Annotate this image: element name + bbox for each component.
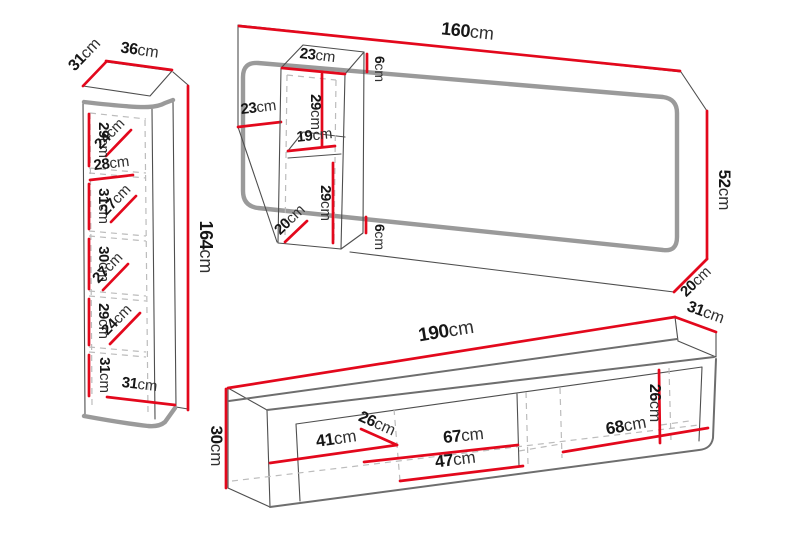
dim-label-cabinet-upper-section: 29cm xyxy=(307,94,324,130)
dim-label-stand-height: 30cm xyxy=(207,426,226,467)
dim-label-stand-right-height: 26cm xyxy=(646,384,663,422)
furniture-dimensions-diagram: 31cm 36cm 164cm 29cm 24cm 28cm 31cm 27cm… xyxy=(0,0,800,533)
dim-label-gap-top: 6cm xyxy=(372,56,388,82)
tv-stand-left-face xyxy=(228,388,270,507)
dim-line-tall-shelf-width xyxy=(90,175,133,180)
dim-label-tall-bottom-width: 31cm xyxy=(121,374,159,395)
dim-label-stand-front-width: 47cm xyxy=(434,448,477,472)
wall-panel-with-cabinet: 160cm 23cm 6cm 23cm 29cm 19cm 29cm 20cm … xyxy=(238,18,734,300)
dim-label-panel-bottom-depth: 20cm xyxy=(677,263,715,300)
dim-label-tall-sec5-height: 31cm xyxy=(96,357,113,393)
dim-label-tall-sec2-diag: 27cm xyxy=(97,181,134,219)
dim-label-stand-mid-compartment: 67cm xyxy=(442,424,485,447)
dim-label-stand-left-compartment: 41cm xyxy=(315,426,358,450)
dim-label-gap-bottom: 6cm xyxy=(372,224,388,250)
tv-stand-interior-edges xyxy=(296,367,702,501)
dim-label-tall-height: 164cm xyxy=(196,221,216,274)
dim-label-panel-height: 52cm xyxy=(715,170,734,211)
tv-stand: 190cm 31cm 30cm 41cm 26cm 67cm 47cm 26cm… xyxy=(207,298,726,507)
dim-label-cabinet-top-width: 23cm xyxy=(299,45,337,66)
tall-cabinet: 31cm 36cm 164cm 29cm 24cm 28cm 31cm 27cm… xyxy=(65,35,216,426)
dim-line-tall-bottom-width xyxy=(107,397,175,405)
dim-label-stand-right-compartment: 68cm xyxy=(604,413,647,439)
dim-label-stand-width: 190cm xyxy=(417,317,475,346)
diagram-canvas: 31cm 36cm 164cm 29cm 24cm 28cm 31cm 27cm… xyxy=(0,0,800,533)
dim-label-cabinet-lower-section: 29cm xyxy=(317,185,334,221)
dim-line-tall-top-width xyxy=(106,61,172,70)
tall-cabinet-bottom-band xyxy=(84,408,175,426)
tall-cabinet-top-band xyxy=(84,100,173,107)
dim-line-tall-top-depth xyxy=(83,62,106,86)
dim-label-panel-width: 160cm xyxy=(440,18,495,43)
dim-label-tall-top-width: 36cm xyxy=(119,39,159,61)
